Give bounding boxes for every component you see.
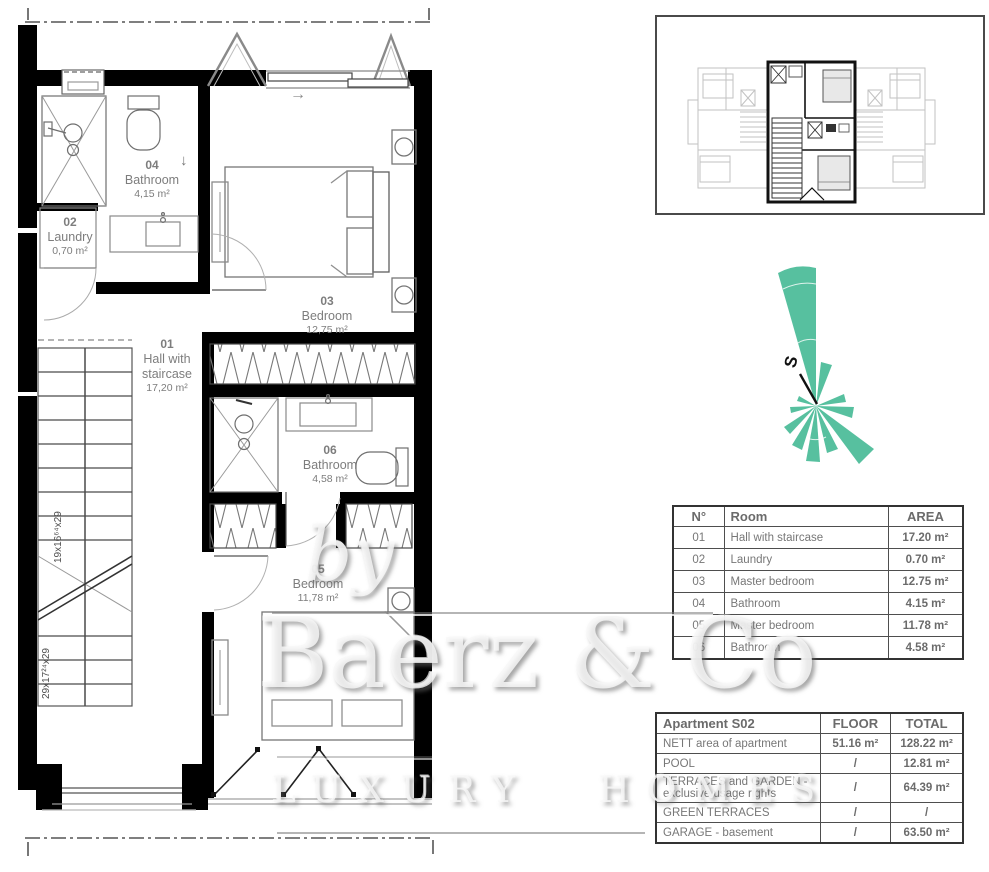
- col-total: TOTAL: [891, 713, 963, 734]
- apartment-totals-table: Apartment S02 FLOOR TOTAL NETT area of a…: [655, 712, 964, 844]
- table-row: GARAGE - basement / 63.50 m²: [656, 823, 963, 844]
- overview-key-plan: [650, 12, 989, 222]
- col-area: AREA: [888, 506, 963, 527]
- room-label-02: 02 Laundry 0,70 m²: [40, 215, 100, 258]
- table-row: 02Laundry 0.70 m²: [673, 549, 963, 571]
- apartment-table-header: Apartment S02 FLOOR TOTAL: [656, 713, 963, 734]
- room-label-01: 01 Hall with staircase 17,20 m²: [130, 337, 204, 395]
- table-row: NETT area of apartment 51.16 m² 128.22 m…: [656, 734, 963, 754]
- room-label-05: 05 Bedroom 11,78 m²: [274, 562, 362, 605]
- table-row: 05Master bedroom 11.78 m²: [673, 615, 963, 637]
- stair-mark-lower: 29x17²⁴x29: [41, 648, 52, 699]
- col-number: N°: [673, 506, 724, 527]
- room-label-06: 06 Bathroom 4,58 m²: [288, 443, 372, 486]
- folding-doors: [208, 746, 432, 804]
- wind-rose: [746, 256, 886, 466]
- room-area-table: N° Room AREA 01Hall with staircase 17.20…: [672, 505, 964, 660]
- table-row: POOL / 12.81 m²: [656, 754, 963, 774]
- table-row: 03Master bedroom 12.75 m²: [673, 571, 963, 593]
- appliance-niche: [62, 70, 104, 94]
- table-row: 04Bathroom 4.15 m²: [673, 593, 963, 615]
- floor-plan-drawing: [0, 0, 450, 872]
- wardrobe-strip: [210, 344, 415, 384]
- table-row: 06Bathroom 4.58 m²: [673, 637, 963, 660]
- col-floor: FLOOR: [820, 713, 891, 734]
- bedroom03-furniture: [212, 130, 416, 312]
- table-row: TERRACES and GARDEN - exclusive usage ri…: [656, 774, 963, 803]
- window-slide-arrow-icon: →: [290, 86, 306, 104]
- room-label-03: 03 Bedroom 12,75 m²: [282, 294, 372, 337]
- table-row: GREEN TERRACES / /: [656, 803, 963, 823]
- closets: [210, 504, 412, 548]
- apartment-title: Apartment S02: [656, 713, 820, 734]
- walls: [18, 25, 432, 810]
- floorplan-page: 04 Bathroom 4,15 m² 02 Laundry 0,70 m² 0…: [0, 0, 989, 872]
- table-row: 01Hall with staircase 17.20 m²: [673, 527, 963, 549]
- door-direction-arrow-icon: ↓: [180, 152, 188, 169]
- top-window: [266, 71, 410, 88]
- stair-mark-upper: 19x16⁶⁴x29: [53, 511, 64, 563]
- col-room: Room: [724, 506, 888, 527]
- room-table-header: N° Room AREA: [673, 506, 963, 527]
- bottom-left-window: [42, 788, 196, 810]
- boundary-lines: [25, 8, 433, 856]
- overview-current-unit: [768, 62, 855, 202]
